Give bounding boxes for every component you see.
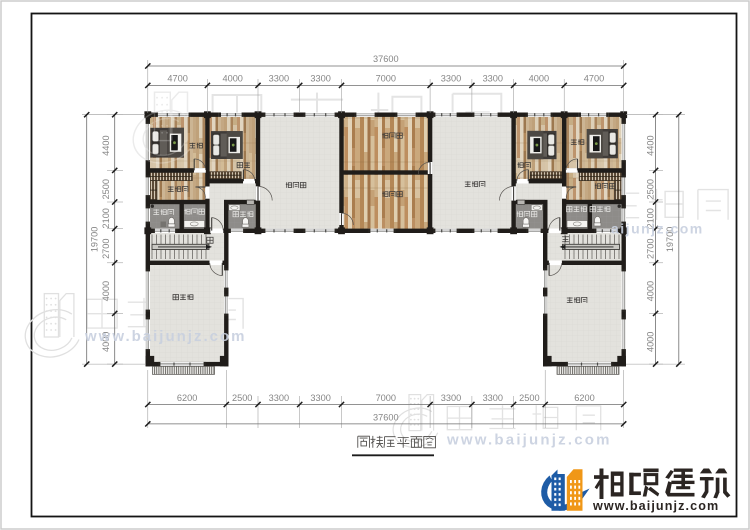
svg-text:6200: 6200 bbox=[177, 393, 197, 403]
svg-text:3300: 3300 bbox=[310, 393, 330, 403]
svg-text:aijunjz.com: aijunjz.com bbox=[611, 221, 704, 237]
svg-text:4700: 4700 bbox=[167, 74, 187, 84]
svg-text:2500: 2500 bbox=[232, 393, 252, 403]
svg-text:6200: 6200 bbox=[574, 393, 594, 403]
svg-text:4700: 4700 bbox=[584, 74, 604, 84]
svg-text:7000: 7000 bbox=[376, 393, 396, 403]
svg-text:2100: 2100 bbox=[101, 208, 111, 228]
svg-text:3300: 3300 bbox=[441, 74, 461, 84]
svg-text:2700: 2700 bbox=[101, 238, 111, 258]
svg-text:4000: 4000 bbox=[645, 332, 655, 352]
svg-text:4400: 4400 bbox=[101, 135, 111, 155]
svg-text:2500: 2500 bbox=[519, 393, 539, 403]
svg-text:37600: 37600 bbox=[373, 413, 399, 423]
svg-text:3300: 3300 bbox=[483, 74, 503, 84]
svg-text:19700: 19700 bbox=[89, 227, 99, 253]
svg-text:2500: 2500 bbox=[101, 179, 111, 199]
svg-text:3300: 3300 bbox=[310, 74, 330, 84]
svg-text:3300: 3300 bbox=[269, 393, 289, 403]
svg-text:www.baijunjz.com: www.baijunjz.com bbox=[592, 499, 719, 513]
svg-text:4000: 4000 bbox=[645, 281, 655, 301]
svg-text:4000: 4000 bbox=[529, 74, 549, 84]
svg-text:3300: 3300 bbox=[269, 74, 289, 84]
svg-text:3300: 3300 bbox=[483, 393, 503, 403]
svg-text:www.baijunjz.com: www.baijunjz.com bbox=[446, 432, 612, 449]
svg-text:4400: 4400 bbox=[645, 135, 655, 155]
svg-text:2700: 2700 bbox=[645, 238, 655, 258]
svg-text:7000: 7000 bbox=[376, 74, 396, 84]
svg-text:www.baijunjz.com: www.baijunjz.com bbox=[84, 328, 246, 345]
svg-text:37600: 37600 bbox=[373, 54, 399, 64]
svg-text:3300: 3300 bbox=[441, 393, 461, 403]
svg-text:2500: 2500 bbox=[645, 179, 655, 199]
svg-text:4000: 4000 bbox=[101, 281, 111, 301]
svg-text:4000: 4000 bbox=[222, 74, 242, 84]
